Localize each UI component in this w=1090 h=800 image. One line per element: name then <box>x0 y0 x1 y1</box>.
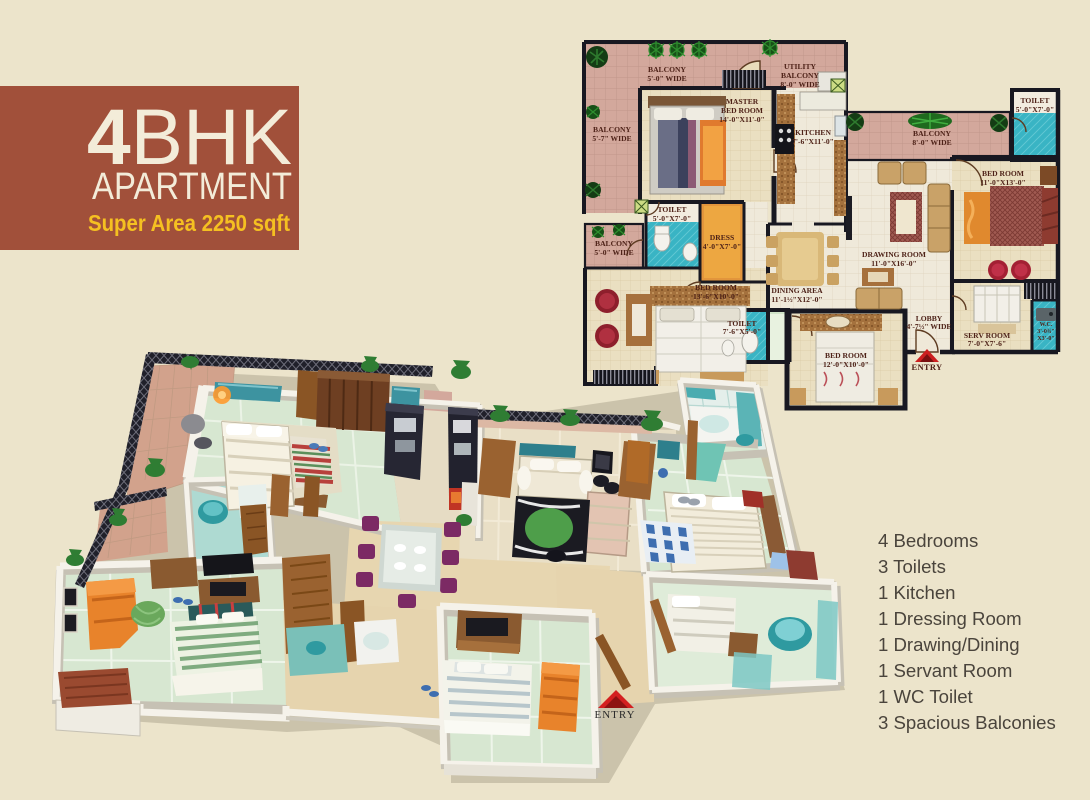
svg-text:4'-0"X7'-0": 4'-0"X7'-0" <box>703 242 741 251</box>
svg-text:W.C.: W.C. <box>1040 322 1053 328</box>
svg-text:BED ROOM: BED ROOM <box>825 351 867 360</box>
svg-text:TOILET: TOILET <box>658 205 687 214</box>
svg-text:14'-0"X11'-0": 14'-0"X11'-0" <box>719 115 765 124</box>
svg-text:11'-0"X13'-0": 11'-0"X13'-0" <box>980 178 1026 187</box>
svg-text:X3'-0": X3'-0" <box>1037 336 1054 342</box>
svg-text:APARTMENT: APARTMENT <box>92 166 292 208</box>
svg-text:BALCONY: BALCONY <box>595 239 633 248</box>
svg-text:7'-0"X7'-6": 7'-0"X7'-6" <box>968 339 1006 348</box>
svg-text:MASTER: MASTER <box>726 97 759 106</box>
svg-text:11'-0"X16'-0": 11'-0"X16'-0" <box>871 259 917 268</box>
svg-text:1 Drawing/Dining: 1 Drawing/Dining <box>878 634 1020 655</box>
svg-text:5'-7" WIDE: 5'-7" WIDE <box>592 134 631 143</box>
svg-text:KITCHEN: KITCHEN <box>795 128 831 137</box>
svg-text:DINING AREA: DINING AREA <box>771 286 823 295</box>
svg-text:BED ROOM: BED ROOM <box>695 283 737 292</box>
svg-text:5'-0"X7'-0": 5'-0"X7'-0" <box>653 214 691 223</box>
svg-text:BED ROOM: BED ROOM <box>721 106 763 115</box>
svg-text:7'-6"X5'-0": 7'-6"X5'-0" <box>723 327 761 336</box>
svg-text:DRESS: DRESS <box>710 233 734 242</box>
svg-text:Super Area 2250 sqft: Super Area 2250 sqft <box>88 210 290 236</box>
svg-text:4'-7½" WIDE: 4'-7½" WIDE <box>906 322 951 331</box>
svg-text:TOILET: TOILET <box>1021 96 1050 105</box>
svg-text:8'-0" WIDE: 8'-0" WIDE <box>780 80 819 89</box>
svg-text:BALCONY: BALCONY <box>781 71 819 80</box>
svg-text:7'-6"X11'-0": 7'-6"X11'-0" <box>792 137 834 146</box>
svg-text:5'-0" WIDE: 5'-0" WIDE <box>647 74 686 83</box>
svg-text:1 Dressing Room: 1 Dressing Room <box>878 608 1022 629</box>
svg-text:3'-0¾": 3'-0¾" <box>1037 328 1055 335</box>
svg-text:8'-0" WIDE: 8'-0" WIDE <box>912 138 951 147</box>
svg-text:3 Spacious Balconies: 3 Spacious Balconies <box>878 712 1056 733</box>
svg-text:BED ROOM: BED ROOM <box>982 169 1024 178</box>
svg-text:12'-0"X10'-0": 12'-0"X10'-0" <box>823 360 869 369</box>
svg-text:BALCONY: BALCONY <box>648 65 686 74</box>
svg-text:13'-6"X10'-0": 13'-6"X10'-0" <box>693 292 739 301</box>
svg-text:UTILITY: UTILITY <box>784 62 817 71</box>
svg-text:BALCONY: BALCONY <box>913 129 951 138</box>
svg-text:DRAWING ROOM: DRAWING ROOM <box>862 250 926 259</box>
svg-text:ENTRY: ENTRY <box>594 709 635 721</box>
svg-text:11'-1½"X12'-0": 11'-1½"X12'-0" <box>771 295 822 304</box>
svg-text:BALCONY: BALCONY <box>593 125 631 134</box>
svg-text:1 Servant Room: 1 Servant Room <box>878 660 1012 681</box>
svg-text:ENTRY: ENTRY <box>912 362 943 372</box>
svg-text:3 Toilets: 3 Toilets <box>878 556 946 577</box>
svg-text:4 Bedrooms: 4 Bedrooms <box>878 530 978 551</box>
svg-text:1 Kitchen: 1 Kitchen <box>878 582 956 603</box>
svg-text:5'-0"X7'-0": 5'-0"X7'-0" <box>1016 105 1054 114</box>
svg-text:1 WC Toilet: 1 WC Toilet <box>878 686 974 707</box>
svg-text:5'-0" WIDE: 5'-0" WIDE <box>594 248 633 257</box>
